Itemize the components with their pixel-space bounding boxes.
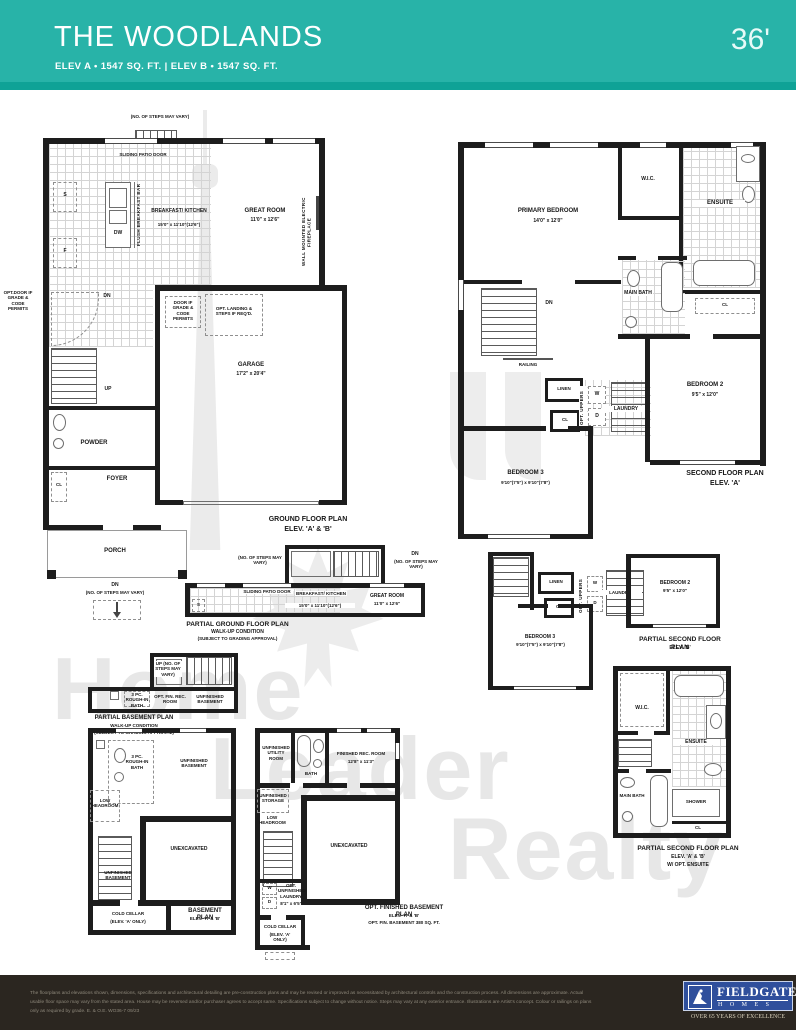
wall [260,783,290,788]
wall [588,426,593,539]
plan-title: PARTIAL GROUND FLOOR PLAN [185,621,290,629]
wall [49,406,155,410]
closet-label: CL [717,302,733,307]
landing [291,551,331,577]
main-bath-label: MAIN BATH [618,793,646,798]
tank [110,691,119,700]
linen-label: LINEN [547,386,581,391]
ensuite-label: ENSUITE [695,200,745,207]
wall [88,728,236,733]
closet-label: CL [552,417,578,422]
elevation-sqft-line: ELEV A • 1547 SQ. FT. | ELEV B • 1547 SQ… [55,61,278,72]
great-room-dims: 11'0" x 12'6" [363,601,411,606]
wall [458,142,464,539]
wall [155,285,347,291]
sink [625,316,637,328]
wall [140,816,231,822]
bedroom3-label: BEDROOM 3 [500,634,580,640]
wall [255,915,271,920]
wall [49,466,155,470]
window [223,138,265,144]
bedroom3-dims: 9'10"(7'5") x 9'10"(7'8") [493,642,588,647]
closet-label: CL [686,825,710,830]
dn-label: DN [537,300,561,306]
wall [185,613,425,617]
plan-title: GROUND FLOOR PLAN [253,516,363,525]
lot-width: 36' [731,23,770,57]
wall [234,653,238,689]
wall [666,671,670,733]
disclaimer-line: The floorplans and elevations shown, dim… [30,991,583,996]
railing-label: RAILING [503,362,553,367]
partial-ground-floor-plan: (NO. OF STEPS MAY VARY) DN (NO. OF STEPS… [185,543,445,648]
bathtub [693,260,755,286]
down-arrow-icon [113,612,121,618]
porch-post [47,570,56,579]
porch-label: PORCH [85,548,145,555]
fireplace [316,196,319,230]
opt-rec-room-label: OPT. FIN. REC. ROOM [154,694,186,705]
garage-dims: 17'2" x 20'4" [221,371,281,377]
opt-uppers-label: OPT. UPPERS [579,386,587,430]
steps-note: (NO. OF STEPS MAY VARY) [237,555,283,566]
dishwasher-label: DW [105,230,131,236]
window [550,142,598,148]
kitchen-dims: 15'0" x 11'10"(12'6") [139,222,219,227]
plan-subtitle: ELEV. 'A' [680,480,770,489]
logo-homes-text: H O M E S [718,1002,772,1008]
plan-subtitle: WALK-UP CONDITION [185,629,290,635]
wall [88,900,120,906]
wall [613,833,731,838]
bedroom2-dims: 9'5" x 12'0" [640,588,710,593]
closet-label: CL [51,482,67,487]
great-room-label: GREAT ROOM [363,593,411,599]
foyer-label: FOYER [97,476,137,483]
wall [301,795,395,801]
tank [96,740,105,749]
bath-roughin-label: 3 PC. ROUGH-IN BATH [122,692,152,708]
wall [166,906,171,932]
steps-outline [265,952,295,960]
ensuite-label: ENSUITE [674,739,718,745]
disclaimer-line: usable floor space may vary from the sta… [30,1000,591,1005]
sliding-door-label: SLIDING PATIO DOOR [113,152,173,157]
wall [342,291,347,505]
garage-door [183,501,319,505]
window [640,142,666,148]
cold-cellar-note: (ELEV. 'A' ONLY) [263,932,297,943]
laundry-label: LAUNDRY [598,590,642,595]
partial-second-floor-plan-ensuite: W.I.C. ENSUITE MAIN BATH SHOWER CL PARTI… [610,663,755,873]
wall [726,666,731,838]
wall [155,291,160,505]
linen-label: LINEN [540,579,572,584]
wall [319,138,325,291]
bathtub [661,262,683,312]
cabinet [109,188,127,208]
toilet [704,763,722,776]
wall [325,733,329,787]
sink [114,772,124,782]
kitchen-label: BREAKFAST/ KITCHEN [295,591,347,596]
plan-title: SECOND FLOOR PLAN [680,470,770,479]
wall [716,554,720,628]
wall [575,280,621,284]
wall [88,709,238,713]
opt-finished-basement-plan: UNFINISHED UTILITY ROOM BATH FINISHED RE… [255,723,445,963]
washer-label: W [262,885,277,890]
plan-note: (SUBJECT TO GRADING APPROVAL) [185,636,290,641]
fieldgate-homes-logo: FIELDGATE H O M E S [683,981,793,1011]
opt-landing-note: OPT. LANDING & STEPS IF REQ'D. [209,306,259,317]
stairs [493,557,529,597]
unexcavated-label: UNEXCAVATED [319,843,379,849]
unexcavated-label: UNEXCAVATED [160,846,218,852]
opt-laundry-label: OPT. UNFINISHED LAUNDRY [278,883,304,899]
steps-note: (NO. OF STEPS MAY VARY) [127,114,193,119]
wall [558,604,593,608]
main-bath-label: MAIN BATH [623,290,653,296]
pantry-label: S [192,602,205,607]
plan-title: PARTIAL BASEMENT PLAN [88,715,180,722]
plan-subtitle: ELEV. 'A' & 'B' [253,526,363,535]
kitchen-label: BREAKFAST/ KITCHEN [147,208,211,214]
unfinished-basement-label: UNFINISHED BASEMENT [98,870,138,881]
bath-label: BATH [299,771,323,776]
wall [618,334,690,339]
logo-brand-text: FIELDGATE [717,984,796,1000]
wall [618,216,681,220]
window [514,686,576,690]
breakfast-bar-line [134,182,135,248]
wall [626,554,631,628]
wic-shelving [620,673,664,727]
door-grade-note: DOOR IF GRADE & CODE PERMITS [167,300,199,322]
cold-cellar-label: COLD CELLAR [98,911,158,916]
bath-roughin-label: 3 PC. ROUGH-IN BATH [122,754,152,770]
wall [421,583,425,617]
sink [741,154,755,163]
wall [488,552,534,556]
bedroom2-label: BEDROOM 2 [640,580,710,586]
window [116,728,142,733]
wall [618,142,622,220]
wall [140,816,146,906]
great-room-dims: 11'0" x 12'6" [235,217,295,223]
low-headroom-label: LOW HEADROOM [91,798,119,809]
wall [138,900,236,906]
logo-tagline: OVER 65 YEARS OF EXCELLENCE [680,1014,796,1020]
steps-note: (NO. OF STEPS MAY VARY) [63,590,167,595]
toilet [53,414,66,431]
walkup-steps [333,551,379,577]
wall [88,687,92,711]
window [485,142,533,148]
wall [360,783,395,788]
toilet [313,739,324,753]
sink [622,811,633,822]
wall [319,500,347,505]
bathtub [297,735,311,767]
steps-note: (NO. OF STEPS MAY VARY) [393,559,439,570]
unfinished-basement-label: UNFINISHED BASEMENT [190,694,230,705]
vanity [736,146,760,182]
wall [488,686,514,690]
window [370,583,404,588]
window [458,280,464,310]
laundry-label: LAUNDRY [603,406,649,412]
window [653,624,706,628]
bedroom2-label: BEDROOM 2 [667,382,743,389]
draftsman-emblem-icon [688,985,712,1009]
dryer-label: D [262,899,277,904]
wall [530,552,534,610]
wall [589,604,593,690]
walkup-steps [186,657,232,685]
opt-door-note: OPT.DOOR IF GRADE & CODE PERMITS [1,290,35,312]
garage-label: GARAGE [221,362,281,369]
wall [760,142,766,466]
stairs [618,739,652,767]
wall [88,930,236,935]
logo-divider [717,1000,788,1001]
cabinet [109,210,127,224]
dryer-label: D [588,413,606,419]
powder-label: POWDER [71,440,117,447]
wall [672,821,726,824]
wall [576,686,593,690]
window [367,728,391,733]
washer-label: W [588,391,606,397]
wall [291,733,295,783]
utility-room-label: UNFINISHED UTILITY ROOM [261,745,291,761]
page-title: THE WOODLANDS [54,21,323,54]
plan-note: W/ OPT. ENSUITE [628,862,748,868]
plan-subtitle: ELEV. 'A' & 'B' [363,913,445,918]
bedroom2-dims: 9'5" x 12'0" [667,392,743,398]
rec-room-dims: 12'8" x 11'3" [335,759,387,764]
sink [53,438,64,449]
low-headroom-label: LOW HEADROOM [259,815,285,826]
header-accent-strip [0,82,796,90]
wall [381,545,385,583]
pantry-label: S [53,192,77,198]
wall [713,334,766,339]
kitchen-dims: 15'0" x 11'10"(12'6") [285,603,355,608]
plan-subtitle: ELEV. 'A' & 'B' [628,854,748,860]
wall [650,460,680,465]
plan-subtitle: ELEV. 'A' & 'B' [180,916,230,921]
wic-label: W.I.C. [625,176,671,182]
bedroom3-dims: 9'10"(7'5") x 9'10"(7'8") [473,480,578,485]
up-label: UP [97,386,119,392]
fridge-label: F [53,248,77,254]
bedroom3-label: BEDROOM 3 [483,470,568,477]
unfinished-basement-label: UNFINISHED BASEMENT [172,758,216,769]
wall [458,534,488,539]
wall [618,731,638,735]
wall [679,290,760,294]
floorplan-sheet: { "header": { "title": "THE WOODLANDS", … [0,0,796,1030]
wall [234,687,238,711]
primary-bedroom-label: PRIMARY BEDROOM [508,208,588,215]
arrow-stem [116,602,118,612]
sink [710,713,722,729]
flush-bar-label: FLUSH BREAKFAST BAR [136,180,145,250]
dn-label: DN [91,582,139,588]
great-room-label: GREAT ROOM [235,208,295,215]
wall [518,604,548,608]
railing [503,358,553,360]
wall [301,915,305,950]
wall [654,731,670,735]
wall [285,545,385,549]
sliding-door-label: SLIDING PATIO DOOR [241,589,293,594]
wall [735,460,766,465]
toilet [620,777,635,788]
sink [313,759,322,768]
opt-uppers-label: OPT. UPPERS [578,578,586,614]
toilet [627,270,640,287]
second-floor-plan: PRIMARY BEDROOM 14'0" x 12'0" W.I.C. ENS… [455,130,795,560]
wall [626,554,720,558]
stairs-down [481,288,537,356]
bathtub [674,675,724,697]
window [337,728,361,733]
wall [613,769,629,773]
dn-label: DN [405,551,425,557]
window [395,743,400,759]
window [273,138,315,144]
rec-room-label: FINISHED REC. ROOM [335,751,387,756]
primary-bedroom-dims: 14'0" x 12'0" [508,218,588,224]
wall [464,280,522,284]
basement-plan: 3 PC. ROUGH-IN BATH UNFINISHED BASEMENT … [88,728,253,940]
window [180,728,206,733]
fireplace-label: WALL MOUNTED ELECTRIC FIREPLACE [301,186,315,278]
shower-label: SHOWER [680,799,712,804]
stairs-up [51,348,97,404]
plan-subtitle: ELEV. 'B' [636,645,724,651]
bathtub [650,775,668,827]
header-banner: THE WOODLANDS ELEV A • 1547 SQ. FT. | EL… [0,0,796,90]
wall [285,545,289,583]
plan-note: OPT. FIN. BASEMENT 380 SQ. FT. [363,920,445,925]
wall [631,624,653,628]
window [488,534,550,539]
wall [645,338,650,462]
cold-cellar-note: (ELEV. 'A' ONLY) [100,919,156,924]
disclaimer-line: only as required by grade. E. & O.E. WO3… [30,1009,139,1014]
opt-laundry-dims: 8'1" x 6'5" [278,901,304,906]
up-steps-note: UP (NO. OF STEPS MAY VARY) [154,661,182,677]
washer-label: W [587,580,603,585]
wall [646,769,671,773]
wall [155,500,183,505]
wall [458,426,546,431]
plan-title: PARTIAL SECOND FLOOR PLAN [628,845,748,853]
window [680,460,735,465]
storage-label: UNFINISHED STORAGE [258,793,288,804]
wic-label: W.I.C. [624,705,660,711]
footer-bar: The floorplans and elevations shown, dim… [0,975,796,1030]
wall [550,534,593,539]
wall [706,624,720,628]
stairs [98,836,132,900]
cold-cellar-label: COLD CELLAR [261,924,299,929]
